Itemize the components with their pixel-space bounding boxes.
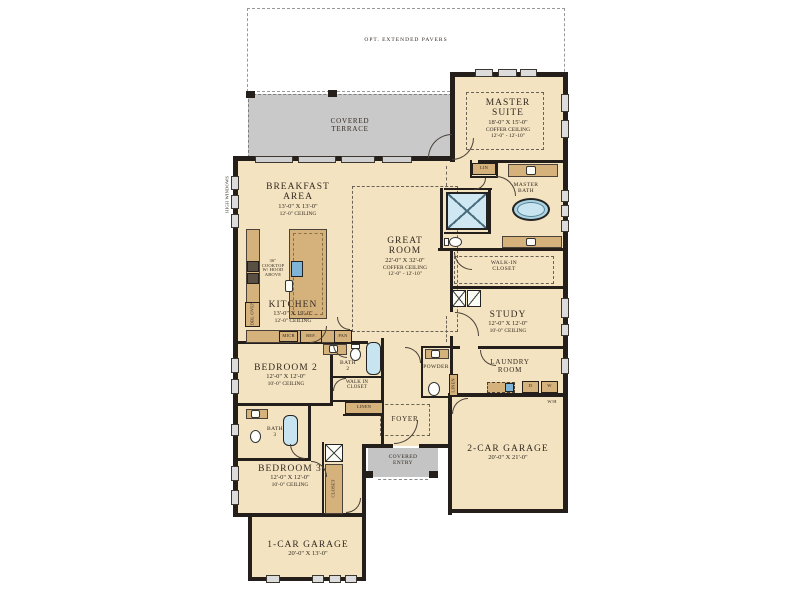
covered-entry-label: COVERED ENTRY bbox=[368, 454, 438, 467]
room-label-study: STUDY 12'-0" X 12'-0" 10'-0" CEILING bbox=[458, 310, 558, 335]
wall-garage2-top bbox=[448, 393, 568, 397]
window bbox=[561, 298, 569, 318]
window bbox=[266, 575, 280, 583]
wall-bed3-right bbox=[362, 444, 366, 581]
island-sink bbox=[285, 280, 293, 292]
wall-study-south-a bbox=[450, 346, 460, 349]
lin-label: LIN bbox=[472, 166, 496, 171]
window bbox=[231, 358, 239, 373]
wall-powder-bottom bbox=[421, 396, 451, 398]
room-label-foyer: FOYER bbox=[380, 415, 430, 423]
room-label-garage1: 1-CAR GARAGE 20'-0" X 13'-0" bbox=[252, 540, 364, 558]
room-label-garage2: 2-CAR GARAGE 20'-0" X 21'-0" bbox=[452, 444, 564, 462]
wall-bed3-bottom bbox=[233, 513, 366, 517]
room-label-master-suite: MASTER SUITE 18'-0" X 15'-0" COFFER CEIL… bbox=[452, 98, 564, 140]
window bbox=[561, 190, 569, 202]
room-label-bedroom3: BEDROOM 3 12'-0" X 12'-0" 10'-0" CEILING bbox=[240, 464, 340, 489]
vanity-sink bbox=[526, 238, 536, 246]
window bbox=[231, 379, 239, 394]
wall-shower-east bbox=[488, 188, 491, 234]
window bbox=[329, 575, 341, 583]
powder-sink bbox=[431, 350, 440, 358]
slider-door bbox=[382, 156, 412, 163]
window bbox=[561, 205, 569, 217]
wall-shower-bottom bbox=[444, 232, 491, 234]
hall-opening-dash bbox=[446, 166, 448, 186]
cooktop bbox=[291, 261, 303, 277]
window bbox=[231, 195, 239, 209]
terrace-post-left bbox=[246, 91, 255, 98]
washer-label: W bbox=[541, 384, 558, 389]
room-label-wic2: WALK IN CLOSET bbox=[332, 380, 382, 391]
window bbox=[498, 69, 517, 77]
bed3-closet-box bbox=[325, 444, 343, 462]
room-label-bath2: BATH 2 bbox=[334, 360, 362, 373]
wall-bed2-south bbox=[235, 403, 333, 406]
covered-terrace-label: COVERED TERRACE bbox=[248, 117, 452, 133]
vanity-sink bbox=[526, 166, 536, 175]
toilet bbox=[428, 382, 440, 396]
room-label-bath3: BATH 3 bbox=[260, 426, 290, 439]
wall-bath3-south bbox=[235, 458, 311, 461]
linen-hall-label: LINEN bbox=[452, 372, 457, 398]
room-label-bedroom2: BEDROOM 2 12'-0" X 12'-0" 10'-0" CEILING bbox=[240, 363, 332, 388]
wall-study-south-b bbox=[478, 346, 568, 349]
window bbox=[561, 358, 569, 374]
room-label-powder: POWDER bbox=[419, 364, 453, 370]
shower bbox=[446, 192, 488, 230]
microwave-label: MICR bbox=[279, 334, 298, 339]
study-opening-dash bbox=[446, 316, 448, 342]
wall-left bbox=[233, 156, 238, 517]
entry-column-right bbox=[429, 471, 438, 478]
wall-shower-top bbox=[444, 188, 492, 190]
toilet-tank bbox=[351, 344, 360, 349]
room-label-breakfast: BREAKFAST AREA 13'-0" X 13'-0" 12'-0" CE… bbox=[245, 182, 351, 217]
room-label-kitchen: KITCHEN 13'-0" X 19'-0" 12'-0" CEILING bbox=[240, 300, 346, 325]
window bbox=[345, 575, 357, 583]
hall-closet-box bbox=[452, 290, 466, 307]
cooktop-note: 36" COOKTOP W/ HOOD ABOVE bbox=[258, 259, 288, 278]
window bbox=[561, 220, 569, 232]
window bbox=[231, 466, 239, 481]
master-tub-inner bbox=[517, 202, 545, 217]
wall-garage2-bottom bbox=[448, 509, 568, 513]
window bbox=[520, 69, 537, 77]
wall-study-north bbox=[450, 286, 568, 289]
pantry-label: PAN bbox=[334, 334, 352, 339]
slider-door bbox=[298, 156, 336, 163]
wall-foyer-west bbox=[381, 338, 384, 446]
wall-front-left bbox=[365, 444, 393, 448]
linen-label: LINEN bbox=[345, 405, 383, 410]
window bbox=[231, 214, 239, 228]
slider-door bbox=[341, 156, 375, 163]
high-windows-label: HIGH WINDOWS bbox=[226, 172, 231, 216]
utility-sink bbox=[505, 383, 514, 392]
hall-closet-box bbox=[467, 290, 481, 307]
window bbox=[231, 176, 239, 190]
bath3-sink bbox=[251, 410, 260, 418]
wall-powder-left bbox=[421, 346, 423, 398]
window bbox=[312, 575, 324, 583]
wall-bath3-east bbox=[308, 403, 311, 461]
floor-plan: OPT. EXTENDED PAVERS COVERED TERRACE bbox=[0, 0, 800, 600]
wall-linen-south bbox=[343, 414, 383, 416]
window bbox=[231, 424, 239, 436]
pavers-label: OPT. EXTENDED PAVERS bbox=[247, 38, 565, 44]
room-label-great-room: GREAT ROOM 22'-0" X 32'-0" COFFER CEILIN… bbox=[352, 236, 458, 278]
room-label-master-closet: WALK-IN CLOSET bbox=[454, 260, 554, 273]
dryer-label: D bbox=[522, 384, 539, 389]
room-label-master-bath: MASTER BATH bbox=[498, 182, 554, 195]
room-label-laundry: LAUNDRY ROOM bbox=[462, 358, 558, 374]
window bbox=[475, 69, 493, 77]
window bbox=[561, 324, 569, 336]
entry-step bbox=[378, 479, 428, 482]
slider-door bbox=[255, 156, 293, 163]
water-heater-label: W/H bbox=[540, 400, 564, 405]
terrace-post-mid bbox=[328, 90, 337, 97]
window bbox=[231, 490, 239, 505]
wall-powder-top bbox=[421, 346, 451, 348]
bath2-tub bbox=[366, 342, 381, 375]
wall-bath2-south bbox=[330, 376, 383, 378]
